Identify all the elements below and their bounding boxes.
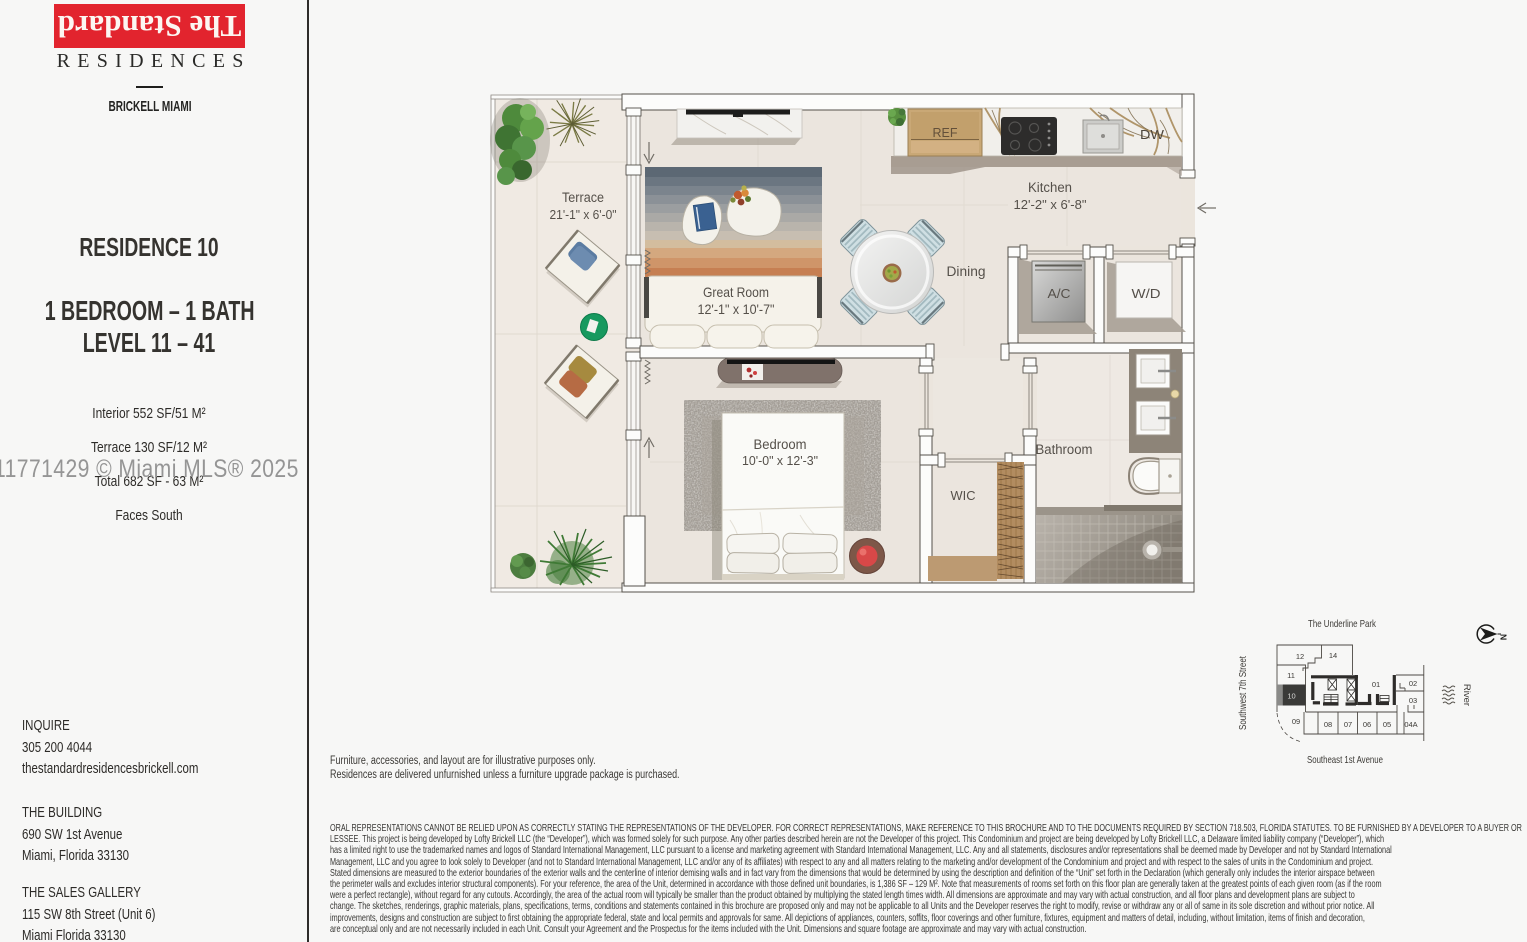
- svg-text:Terrace: Terrace: [562, 190, 604, 205]
- svg-text:Southeast 1st Avenue: Southeast 1st Avenue: [1307, 754, 1383, 766]
- svg-text:DW: DW: [1140, 127, 1165, 142]
- svg-text:11: 11: [1287, 671, 1295, 680]
- svg-text:12'-1" x 10'-7": 12'-1" x 10'-7": [698, 302, 775, 317]
- svg-text:REF: REF: [933, 125, 958, 140]
- svg-text:08: 08: [1324, 720, 1332, 729]
- svg-text:04A: 04A: [1404, 720, 1417, 729]
- svg-text:12'-2" x 6'-8": 12'-2" x 6'-8": [1014, 197, 1087, 212]
- svg-text:02: 02: [1409, 679, 1417, 688]
- svg-text:Great Room: Great Room: [703, 284, 769, 300]
- svg-text:21'-1" x 6'-0": 21'-1" x 6'-0": [550, 207, 617, 222]
- svg-text:WIC: WIC: [951, 489, 976, 503]
- svg-text:Bathroom: Bathroom: [1036, 442, 1093, 457]
- svg-text:09: 09: [1292, 717, 1300, 726]
- svg-text:03: 03: [1409, 696, 1417, 705]
- svg-text:Bedroom: Bedroom: [754, 437, 807, 452]
- svg-text:14: 14: [1329, 651, 1337, 660]
- svg-text:N: N: [1499, 634, 1509, 640]
- svg-text:10'-0" x 12'-3": 10'-0" x 12'-3": [742, 453, 818, 468]
- svg-text:Kitchen: Kitchen: [1028, 180, 1072, 195]
- svg-text:07: 07: [1344, 720, 1352, 729]
- svg-text:River: River: [1461, 684, 1472, 706]
- svg-text:12: 12: [1296, 652, 1304, 661]
- svg-text:Southwest 7th Street: Southwest 7th Street: [1237, 656, 1249, 730]
- svg-text:01: 01: [1372, 680, 1380, 689]
- svg-text:Dining: Dining: [947, 264, 986, 279]
- svg-text:A/C: A/C: [1048, 287, 1071, 301]
- svg-text:06: 06: [1363, 720, 1371, 729]
- svg-text:W/D: W/D: [1132, 287, 1161, 301]
- svg-text:The Underline Park: The Underline Park: [1308, 618, 1377, 630]
- svg-text:10: 10: [1287, 692, 1295, 701]
- svg-text:05: 05: [1383, 720, 1391, 729]
